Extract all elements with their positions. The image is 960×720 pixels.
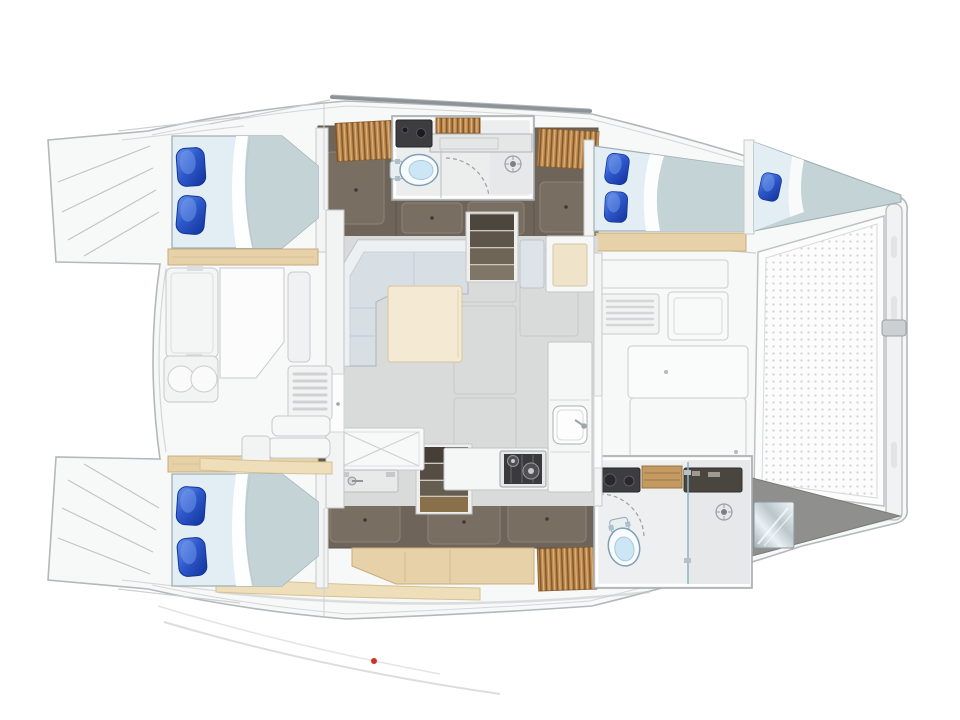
slat-shelf bbox=[436, 118, 480, 133]
stove bbox=[500, 451, 546, 487]
bath-wood-shelf bbox=[642, 466, 682, 488]
pillow bbox=[604, 191, 628, 223]
pillow bbox=[175, 195, 206, 235]
forward-seat-back bbox=[628, 346, 748, 398]
cockpit-seatback bbox=[288, 272, 310, 362]
shower-drain bbox=[716, 504, 732, 520]
companionway-starboard bbox=[537, 547, 596, 591]
forward-seat bbox=[630, 398, 746, 462]
catamaran-floor-plan bbox=[0, 0, 960, 720]
deck-hatch bbox=[668, 292, 728, 340]
hull-side-curves bbox=[158, 606, 500, 694]
bow-crossbeam bbox=[882, 204, 906, 520]
steps-to-port-hull bbox=[466, 212, 518, 282]
deck-vent-louver bbox=[601, 294, 659, 334]
pillow bbox=[604, 152, 630, 185]
floor-plan-canvas bbox=[0, 0, 960, 720]
companionway-port bbox=[335, 121, 393, 162]
galley-sink-unit bbox=[336, 470, 398, 492]
toilet bbox=[390, 155, 438, 186]
mirror-box bbox=[754, 502, 794, 548]
cockpit-stools bbox=[164, 356, 218, 402]
vanity-sink bbox=[396, 120, 432, 147]
shower-drain bbox=[505, 156, 521, 172]
cockpit-louver-hatch bbox=[288, 366, 332, 420]
pillow bbox=[176, 537, 207, 577]
port-bathroom bbox=[390, 116, 534, 200]
cockpit-bench bbox=[166, 266, 218, 359]
trampoline bbox=[754, 216, 884, 506]
cool-box bbox=[338, 428, 424, 470]
salon-table bbox=[388, 286, 462, 362]
foredeck-door bbox=[594, 396, 602, 468]
forestay-fitting bbox=[882, 320, 906, 336]
galley-peninsula bbox=[548, 342, 592, 492]
chart-seat bbox=[520, 236, 594, 292]
pillow bbox=[176, 486, 207, 526]
bed-shelf bbox=[596, 233, 746, 251]
hull-marker-dot bbox=[371, 658, 377, 664]
pillow bbox=[176, 147, 207, 187]
bed-blanket bbox=[657, 156, 744, 231]
